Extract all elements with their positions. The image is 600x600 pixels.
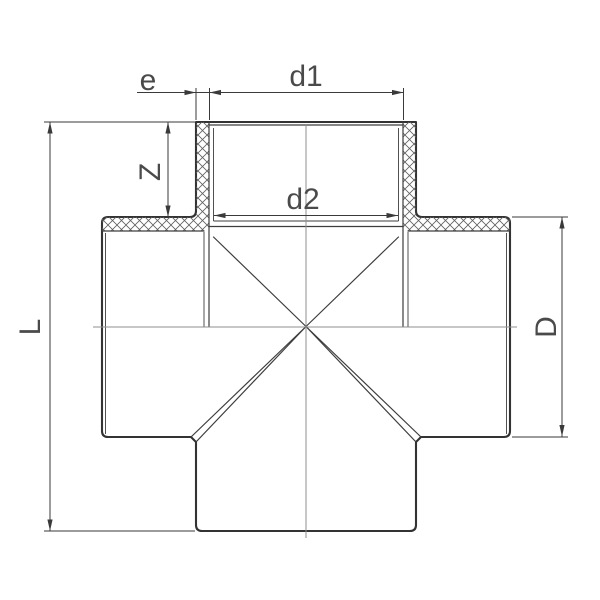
arrowhead xyxy=(185,90,197,95)
label-d1: d1 xyxy=(289,60,322,93)
arrowhead xyxy=(165,206,170,218)
hatch-top-socket-left-wall xyxy=(196,122,209,231)
arrowhead xyxy=(210,90,222,95)
label-d: D xyxy=(530,316,563,338)
dimension-z: Z xyxy=(134,122,171,217)
dimension-e-d1: e d1 xyxy=(137,60,404,120)
hatch-left-shoulder xyxy=(102,217,196,231)
arrowhead xyxy=(165,122,170,134)
arrowhead xyxy=(559,217,564,229)
arrowhead xyxy=(392,90,404,95)
label-d2: d2 xyxy=(286,183,319,216)
hatch-right-shoulder xyxy=(416,217,510,231)
arrowhead xyxy=(47,520,52,532)
hatch-top-socket-right-wall xyxy=(403,122,416,231)
label-z: Z xyxy=(134,163,167,181)
label-l: L xyxy=(14,319,47,336)
arrowhead xyxy=(47,122,52,134)
label-e: e xyxy=(140,64,157,97)
cross-fitting-drawing: e d1 d2 Z L D xyxy=(0,0,600,600)
drawing-canvas: e d1 d2 Z L D xyxy=(0,0,600,600)
dimension-d: D xyxy=(512,217,568,437)
arrowhead xyxy=(559,425,564,437)
